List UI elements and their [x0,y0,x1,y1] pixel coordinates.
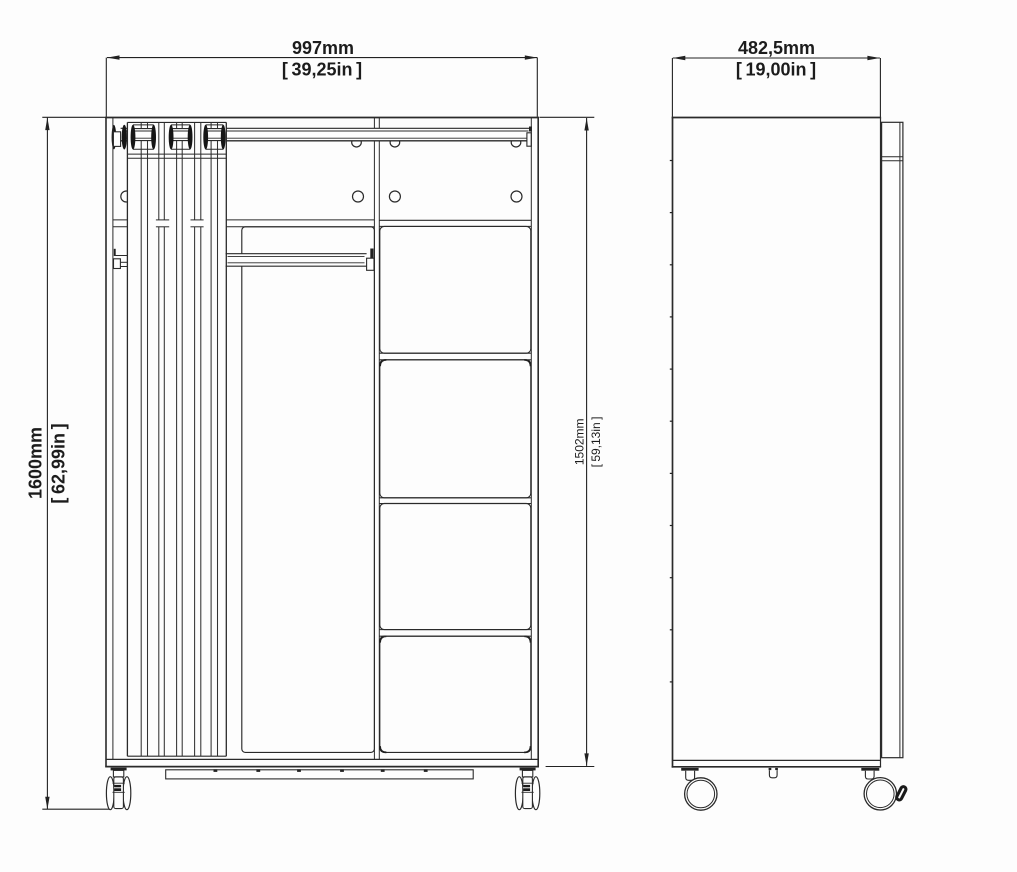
svg-text:[ 62,99in ]: [ 62,99in ] [49,423,69,503]
svg-text:[ 39,25in ]: [ 39,25in ] [282,60,362,80]
svg-text:997mm: 997mm [292,38,354,58]
svg-text:[ 19,00in ]: [ 19,00in ] [736,60,816,80]
svg-text:1502mm: 1502mm [572,418,586,465]
svg-text:1600mm: 1600mm [26,427,46,499]
svg-text:[ 59,13in ]: [ 59,13in ] [589,417,603,468]
svg-text:482,5mm: 482,5mm [738,38,815,58]
